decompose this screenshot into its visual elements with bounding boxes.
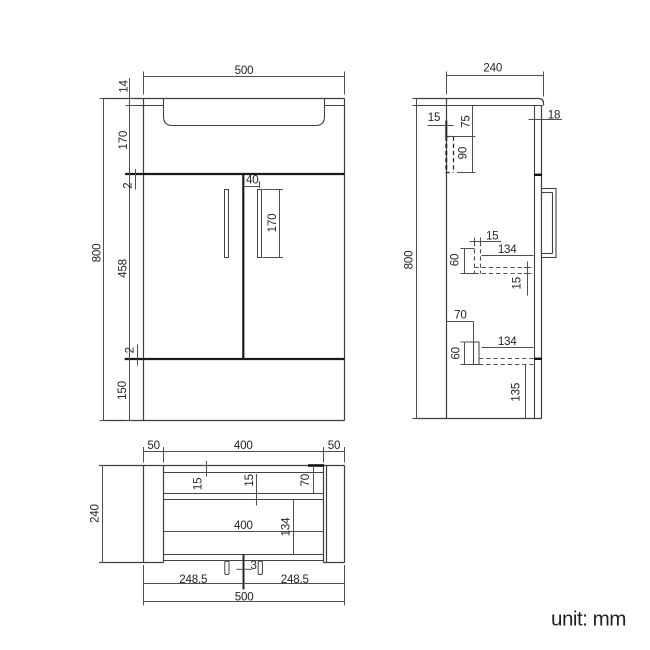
svg-text:15: 15 — [511, 277, 524, 290]
svg-text:18: 18 — [548, 108, 561, 121]
svg-text:60: 60 — [450, 347, 463, 360]
svg-text:170: 170 — [266, 214, 279, 233]
svg-text:134: 134 — [498, 243, 517, 256]
svg-text:40: 40 — [246, 174, 259, 187]
svg-text:unit: mm: unit: mm — [551, 608, 626, 631]
svg-text:15: 15 — [191, 478, 204, 491]
svg-text:70: 70 — [454, 309, 467, 322]
svg-text:800: 800 — [91, 244, 104, 263]
svg-text:500: 500 — [235, 64, 254, 77]
svg-text:248.5: 248.5 — [281, 573, 309, 586]
svg-text:240: 240 — [483, 62, 502, 75]
svg-text:2: 2 — [121, 183, 134, 189]
svg-text:15: 15 — [428, 111, 441, 124]
svg-text:134: 134 — [498, 335, 517, 348]
svg-text:75: 75 — [460, 115, 473, 128]
svg-text:15: 15 — [243, 474, 256, 487]
svg-text:400: 400 — [234, 439, 253, 452]
svg-text:134: 134 — [280, 517, 293, 536]
svg-text:800: 800 — [402, 251, 415, 270]
svg-text:90: 90 — [457, 147, 470, 160]
svg-text:14: 14 — [117, 80, 130, 93]
svg-text:50: 50 — [147, 439, 160, 452]
svg-text:50: 50 — [328, 439, 341, 452]
svg-text:15: 15 — [486, 230, 499, 243]
svg-text:240: 240 — [88, 504, 101, 523]
svg-text:3: 3 — [250, 559, 256, 572]
svg-text:500: 500 — [235, 591, 254, 604]
svg-text:248.5: 248.5 — [179, 573, 207, 586]
svg-text:2: 2 — [124, 347, 137, 353]
svg-text:60: 60 — [449, 254, 462, 267]
svg-text:400: 400 — [234, 519, 253, 532]
svg-text:458: 458 — [116, 259, 129, 278]
svg-text:150: 150 — [116, 381, 129, 400]
svg-text:135: 135 — [509, 383, 522, 402]
svg-text:170: 170 — [117, 131, 130, 150]
svg-text:70: 70 — [299, 474, 312, 487]
